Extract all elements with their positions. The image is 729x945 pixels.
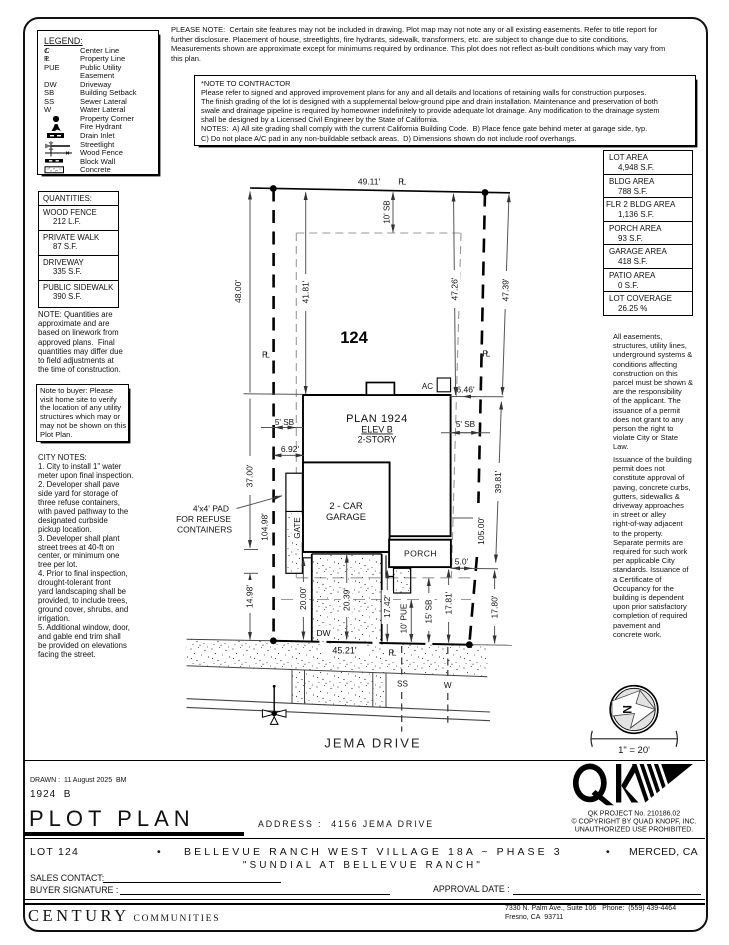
svg-text:QK PROJECT No. 210186.02: QK PROJECT No. 210186.02 [588,811,681,818]
svg-text:PORCH: PORCH [404,549,437,559]
svg-text:PL: PL [262,350,270,360]
svg-text:47.26': 47.26' [449,277,459,300]
svg-text:105.00': 105.00' [476,517,486,545]
svg-text:6.46': 6.46' [456,384,475,394]
svg-text:37.00': 37.00' [244,464,254,487]
svg-text:GARAGE: GARAGE [326,511,366,522]
svg-text:14.98': 14.98' [244,585,254,608]
svg-text:2-STORY: 2-STORY [358,435,397,445]
svg-text:DW: DW [316,628,331,638]
svg-text:SS: SS [397,680,408,689]
svg-text:47.39': 47.39' [501,278,511,301]
svg-text:W: W [444,681,452,690]
svg-text:15' SB: 15' SB [425,599,434,623]
svg-text:PL: PL [398,177,406,187]
svg-text:48.00': 48.00' [233,280,243,303]
svg-text:20.39': 20.39' [341,588,351,611]
svg-text:AC: AC [422,382,433,391]
svg-text:6.92': 6.92' [281,444,300,454]
svg-text:© COPYRIGHT BY QUAD KNOPF, INC: © COPYRIGHT BY QUAD KNOPF, INC. [571,818,696,826]
svg-text:1" = 20': 1" = 20' [618,745,650,756]
svg-text:49.11': 49.11' [358,177,381,187]
svg-text:10' PUE: 10' PUE [399,603,408,633]
svg-text:39.81': 39.81' [493,470,503,493]
svg-text:17.42': 17.42' [382,595,392,618]
svg-text:ELEV B: ELEV B [361,425,393,435]
svg-text:10' SB: 10' SB [383,200,392,223]
svg-text:PL: PL [483,349,491,359]
svg-text:JEMA DRIVE: JEMA DRIVE [324,736,421,751]
svg-text:45.21': 45.21' [332,646,357,656]
svg-text:FOR REFUSE: FOR REFUSE [176,514,231,524]
svg-text:41.81': 41.81' [301,280,311,303]
svg-text:UNAUTHORIZED USE PROHIBITED.: UNAUTHORIZED USE PROHIBITED. [575,827,694,834]
svg-text:PLAN 1924: PLAN 1924 [346,413,408,425]
svg-text:124: 124 [340,329,368,347]
svg-text:CONTAINERS: CONTAINERS [177,525,232,535]
svg-text:5' SB: 5' SB [456,420,476,429]
svg-text:17.80': 17.80' [489,595,499,618]
svg-text:2 - CAR: 2 - CAR [329,500,363,511]
svg-text:20.00': 20.00' [298,587,308,610]
svg-text:GATE: GATE [293,517,302,538]
svg-text:5' SB: 5' SB [275,418,295,427]
svg-text:104.98': 104.98' [260,513,270,541]
svg-text:N: N [620,705,634,714]
svg-text:4'x4' PAD: 4'x4' PAD [193,504,229,514]
svg-text:17.81': 17.81' [443,591,453,614]
svg-text:5.0': 5.0' [455,557,469,567]
